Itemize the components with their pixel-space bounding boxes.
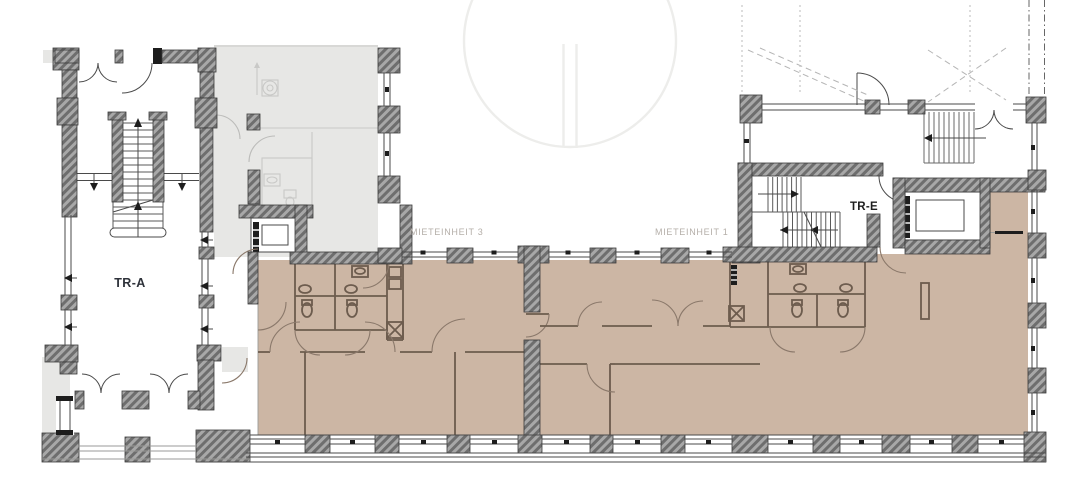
- floor-plan: TR-A TR-E MIETEINHEIT 3 MIETEINHEIT 1: [0, 0, 1070, 494]
- rental-area-right-strip: [990, 188, 1028, 262]
- elevator-door-icon: [253, 222, 259, 252]
- void-dashes: [748, 48, 1006, 102]
- stair-direction-arrow-icon: [791, 190, 799, 198]
- label-stairwell-tr-e: TR-E: [850, 201, 878, 213]
- unit-divider-wall: [524, 246, 540, 312]
- label-stairwell-tr-a: TR-A: [114, 276, 145, 290]
- door-leaf: [153, 48, 162, 64]
- stairwell-a-interior: [77, 48, 199, 237]
- label-unit-1: MIETEINHEIT 1: [655, 227, 728, 237]
- elevator-room: [905, 192, 990, 240]
- section-cut-lines: [742, 0, 1045, 97]
- floor-plan-canvas: TR-A TR-E MIETEINHEIT 3 MIETEINHEIT 1: [0, 0, 1070, 494]
- logo-watermark-icon: [464, 0, 676, 148]
- label-unit-3: MIETEINHEIT 3: [410, 227, 483, 237]
